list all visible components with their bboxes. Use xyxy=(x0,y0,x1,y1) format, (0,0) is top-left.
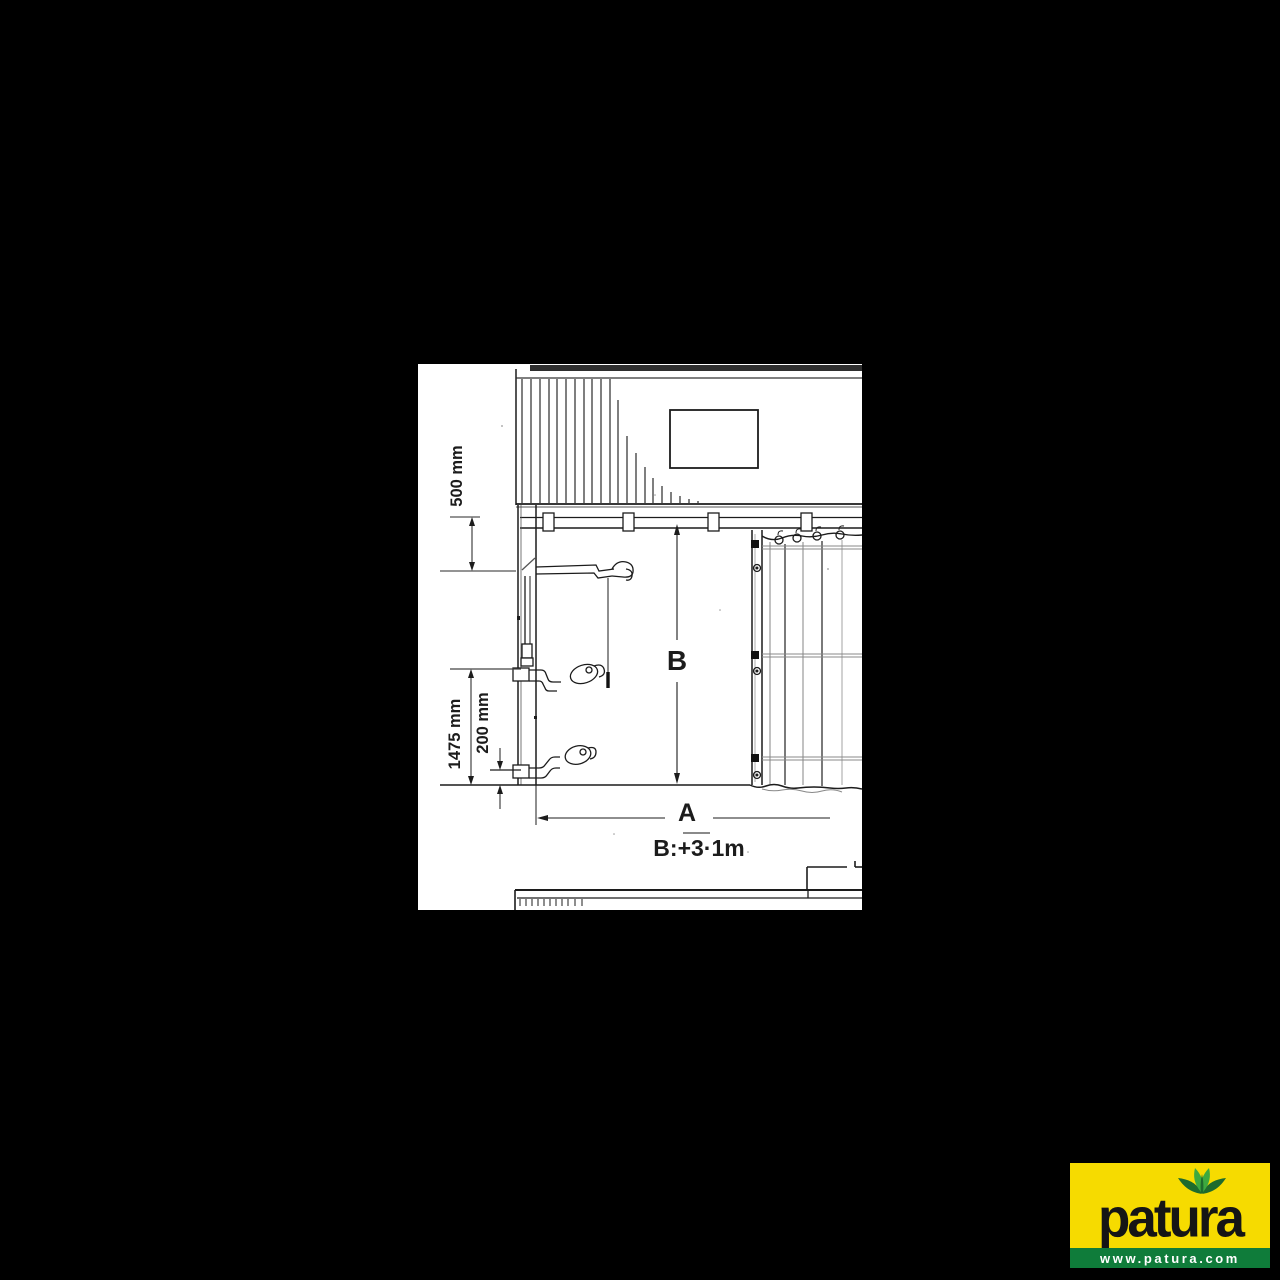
page-background: { "diagram": { "description": "Technical… xyxy=(0,0,1280,1280)
scan-noise xyxy=(501,425,829,853)
logo-yellow-panel: patura xyxy=(1070,1163,1270,1248)
window-opening xyxy=(670,410,758,468)
technical-drawing: 500 mm 1475 mm 200 mm B A B:+3·1m xyxy=(418,364,862,910)
label-A: A xyxy=(678,799,696,827)
label-1475mm: 1475 mm xyxy=(446,699,464,770)
lower-section-cutoff xyxy=(515,861,862,910)
top-crank-handle xyxy=(536,562,633,581)
pull-rope xyxy=(606,578,609,688)
ground-line xyxy=(440,785,862,793)
top-rail xyxy=(516,504,862,531)
brand-wordmark: patura xyxy=(1076,1191,1264,1246)
dimension-500mm xyxy=(440,517,516,571)
drawing-sheet: 500 mm 1475 mm 200 mm B A B:+3·1m xyxy=(418,364,862,910)
label-200mm: 200 mm xyxy=(474,692,492,753)
label-formula: B:+3·1m xyxy=(653,835,744,861)
curtain-batten xyxy=(751,530,762,785)
patura-logo: patura www.patura.com xyxy=(1070,1163,1270,1268)
website-text: www.patura.com xyxy=(1100,1251,1240,1266)
curtain-panel xyxy=(762,526,862,786)
label-B: B xyxy=(667,645,687,676)
winch-post xyxy=(517,505,537,785)
logo-website-bar: www.patura.com xyxy=(1070,1248,1270,1268)
bottom-crank-handle xyxy=(513,743,596,778)
label-500mm: 500 mm xyxy=(448,445,466,506)
roof-edge xyxy=(516,365,862,378)
